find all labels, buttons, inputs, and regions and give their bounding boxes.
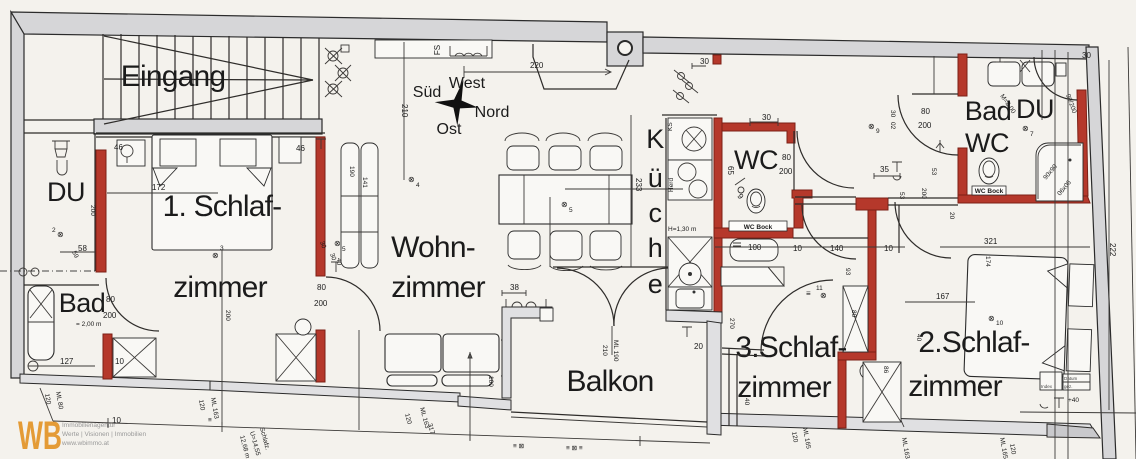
svg-text:10: 10 [996, 320, 1004, 327]
svg-text:h: h [648, 233, 663, 263]
svg-text:Immobilienagentur: Immobilienagentur [62, 422, 116, 429]
svg-text:20: 20 [948, 212, 955, 220]
svg-text:WC: WC [734, 145, 778, 175]
svg-text:H=1,30 m: H=1,30 m [668, 226, 696, 233]
svg-text:10: 10 [793, 244, 802, 253]
svg-text:Eingang: Eingang [121, 60, 226, 93]
svg-text:4: 4 [416, 182, 420, 189]
svg-text:200: 200 [920, 188, 927, 199]
svg-text:38: 38 [510, 283, 519, 292]
svg-text:5: 5 [569, 207, 573, 214]
svg-text:WC Bock: WC Bock [975, 188, 1004, 195]
svg-text:ML 190: ML 190 [612, 340, 619, 362]
svg-text:200: 200 [89, 205, 96, 216]
svg-text:58: 58 [78, 244, 87, 253]
svg-text:30: 30 [762, 113, 771, 122]
svg-text:172: 172 [152, 183, 166, 192]
svg-text:+40: +40 [1068, 397, 1079, 404]
svg-text:210: 210 [400, 104, 409, 118]
svg-text:80: 80 [782, 153, 791, 162]
svg-text:40: 40 [743, 398, 750, 406]
svg-text:West: West [449, 75, 486, 92]
svg-text:FS: FS [433, 45, 442, 55]
svg-text:93: 93 [844, 268, 851, 276]
svg-text:Herd: Herd [668, 178, 675, 192]
svg-text:80: 80 [850, 310, 857, 318]
svg-text:WB: WB [18, 414, 62, 458]
svg-text:140: 140 [830, 244, 844, 253]
svg-text:80: 80 [106, 295, 115, 304]
svg-text:DU: DU [1016, 94, 1054, 124]
svg-text:⊗: ⊗ [868, 122, 875, 131]
svg-text:Süd: Süd [413, 84, 441, 101]
svg-text:≡: ≡ [208, 417, 212, 424]
svg-text:⊗: ⊗ [561, 200, 568, 209]
svg-text:≡: ≡ [806, 289, 811, 298]
svg-text:1. Schlaf-: 1. Schlaf- [163, 190, 282, 223]
svg-text:35: 35 [880, 165, 889, 174]
svg-text:200: 200 [779, 167, 793, 176]
svg-text:46: 46 [114, 143, 123, 152]
svg-text:233: 233 [634, 178, 643, 192]
svg-text:46: 46 [296, 144, 305, 153]
svg-text:200: 200 [314, 299, 328, 308]
svg-text:174: 174 [984, 256, 991, 267]
svg-text:= 2,00 m: = 2,00 m [76, 321, 101, 328]
svg-text:e: e [648, 269, 663, 299]
svg-text:200: 200 [224, 310, 231, 321]
svg-text:30: 30 [700, 57, 709, 66]
svg-text:3.Schlaf-: 3.Schlaf- [735, 331, 846, 364]
svg-text:Bad: Bad [59, 288, 106, 318]
svg-text:167: 167 [936, 292, 950, 301]
svg-text:Balkon: Balkon [567, 365, 654, 398]
svg-text:Index: Index [1041, 384, 1053, 389]
svg-text:⊗: ⊗ [334, 239, 341, 248]
svg-text:⊗: ⊗ [820, 291, 827, 300]
svg-text:3: 3 [220, 245, 224, 252]
svg-text:222: 222 [1108, 243, 1117, 257]
svg-text:⊗: ⊗ [1022, 124, 1029, 133]
svg-text:30: 30 [889, 110, 896, 118]
svg-text:200: 200 [103, 311, 117, 320]
svg-text:≡ ⊠ ≡: ≡ ⊠ ≡ [566, 445, 583, 452]
svg-text:Werte | Visionen | Immobilien: Werte | Visionen | Immobilien [62, 431, 146, 438]
svg-text:KS: KS [667, 122, 674, 131]
svg-text:Ost: Ost [437, 121, 462, 138]
svg-text:K: K [646, 124, 664, 154]
svg-text:www.wbimmo.at: www.wbimmo.at [61, 440, 109, 447]
svg-text:zimmer: zimmer [737, 371, 831, 404]
svg-text:210: 210 [601, 345, 608, 356]
svg-text:141: 141 [361, 177, 368, 188]
svg-text:2: 2 [52, 227, 56, 234]
svg-text:⊗: ⊗ [408, 175, 415, 184]
svg-text:321: 321 [984, 237, 998, 246]
svg-text:100: 100 [748, 243, 762, 252]
svg-text:80: 80 [317, 283, 326, 292]
svg-text:5: 5 [342, 246, 346, 253]
svg-text:Datum: Datum [1064, 376, 1078, 381]
svg-text:200: 200 [918, 121, 932, 130]
svg-text:zimmer: zimmer [173, 271, 267, 304]
svg-text:WC Bock: WC Bock [744, 224, 773, 231]
svg-text:⊗: ⊗ [988, 314, 995, 323]
svg-text:zimmer: zimmer [391, 271, 485, 304]
svg-text:Wohn-: Wohn- [391, 231, 475, 264]
svg-text:7: 7 [1030, 131, 1034, 138]
svg-text:⊗: ⊗ [212, 251, 219, 260]
svg-text:2.Schlaf-: 2.Schlaf- [918, 326, 1029, 359]
svg-text:c: c [649, 198, 662, 228]
svg-text:80: 80 [921, 107, 930, 116]
svg-text:53: 53 [930, 168, 937, 176]
svg-text:≡ ⊠: ≡ ⊠ [513, 443, 525, 450]
svg-text:100: 100 [487, 376, 494, 387]
svg-text:9: 9 [876, 128, 880, 135]
svg-text:WC: WC [965, 128, 1009, 158]
svg-text:10: 10 [115, 357, 124, 366]
svg-text:190: 190 [348, 166, 355, 177]
svg-text:20: 20 [694, 342, 703, 351]
svg-text:Nord: Nord [475, 104, 510, 121]
svg-text:270: 270 [728, 318, 735, 329]
svg-text:11: 11 [816, 285, 823, 292]
svg-text:40: 40 [915, 334, 922, 342]
svg-text:65: 65 [726, 166, 735, 175]
svg-text:10: 10 [884, 244, 893, 253]
svg-text:02: 02 [889, 122, 896, 130]
svg-text:⊗: ⊗ [57, 230, 64, 239]
svg-text:zimmer: zimmer [908, 370, 1002, 403]
svg-text:30: 30 [1082, 51, 1091, 60]
svg-text:DU: DU [47, 177, 85, 207]
svg-text:86: 86 [882, 366, 889, 374]
svg-text:ü: ü [648, 163, 663, 193]
svg-text:127: 127 [60, 357, 74, 366]
